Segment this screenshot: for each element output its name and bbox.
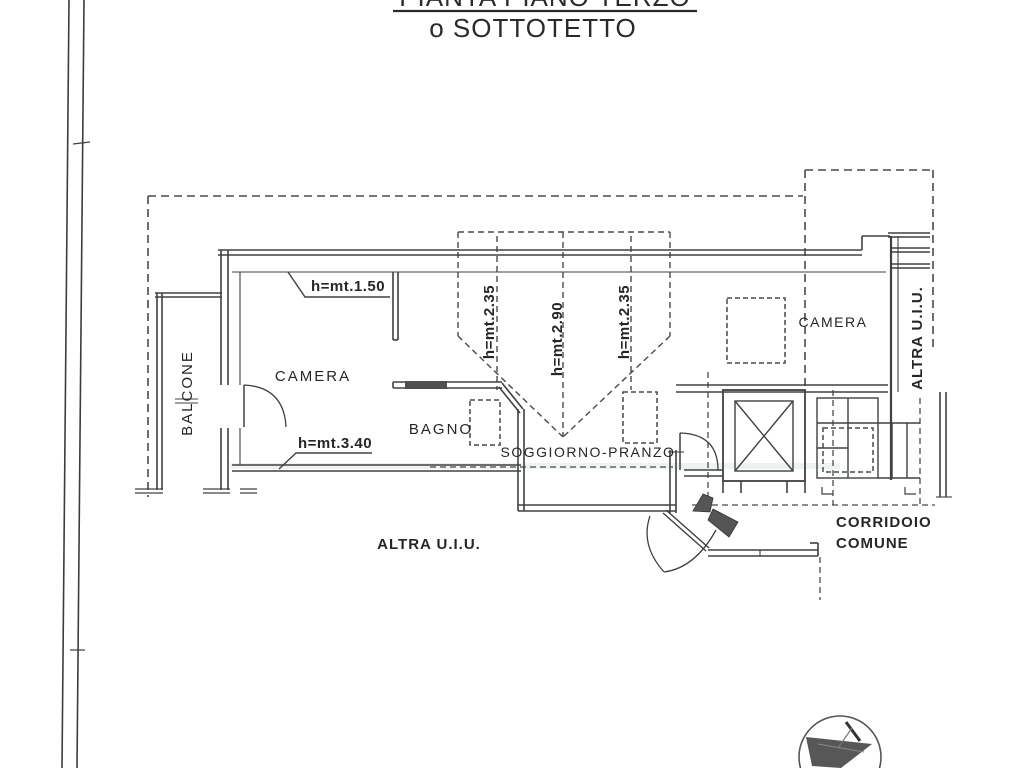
label-corridoio-line1: CORRIDOIO xyxy=(836,514,932,531)
circular-stamp xyxy=(799,716,881,768)
height-290: h=mt.2.90 xyxy=(549,302,566,376)
label-corridoio-line2: COMUNE xyxy=(836,535,909,552)
room-label-soggiorno: SOGGIORNO-PRANZO xyxy=(501,444,676,460)
scan-artifact xyxy=(230,463,840,469)
height-150: h=mt.1.50 xyxy=(311,278,385,295)
entrance-door-leaf-2 xyxy=(666,510,709,548)
height-235-right: h=mt.2.35 xyxy=(616,285,633,359)
label-altra-uiu-bottom: ALTRA U.I.U. xyxy=(377,536,481,553)
height-340: h=mt.3.40 xyxy=(298,435,372,452)
label-altra-uiu-right: ALTRA U.I.U. xyxy=(909,286,926,390)
floor-plan-drawing: PIANTA PIANO TERZO o SOTTOTETTO BALCONE … xyxy=(0,0,1024,768)
drawing-title: PIANTA PIANO TERZO o SOTTOTETTO xyxy=(393,0,697,43)
page-edge-lines xyxy=(62,0,90,768)
room-label-camera-left: CAMERA xyxy=(275,368,351,385)
room-label-camera-right: CAMERA xyxy=(799,314,868,330)
room-label-balcone: BALCONE xyxy=(179,350,196,436)
room-label-bagno: BAGNO xyxy=(409,421,473,438)
door-swings xyxy=(244,385,718,572)
walls xyxy=(135,233,952,556)
entrance-door-leaf xyxy=(663,513,706,551)
title-line2: o SOTTOTETTO xyxy=(429,13,637,43)
balcony-door-swing xyxy=(244,385,286,427)
scanned-floor-plan-page: PIANTA PIANO TERZO o SOTTOTETTO BALCONE … xyxy=(0,0,1024,768)
height-235-left: h=mt.2.35 xyxy=(481,285,498,359)
bagno-window-band xyxy=(405,381,447,389)
entrance-door-swing-2 xyxy=(647,516,664,572)
elevator-symbol xyxy=(723,390,805,493)
